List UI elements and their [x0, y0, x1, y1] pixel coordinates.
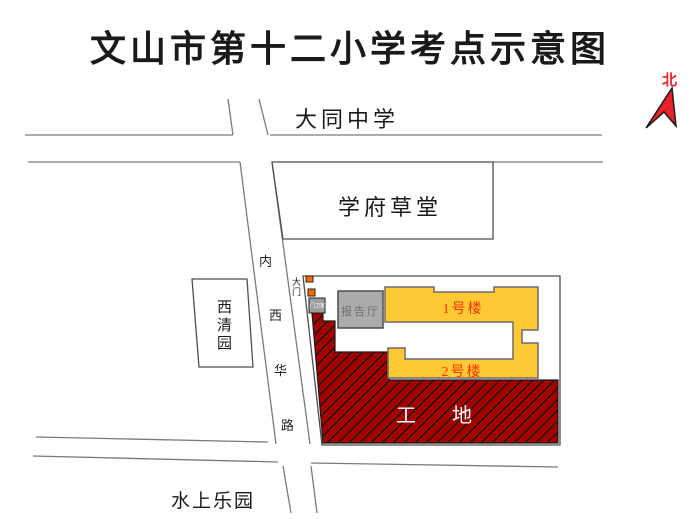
road-name-char: 华 — [274, 360, 287, 379]
label-datong-school: 大同中学 — [277, 102, 417, 134]
north-label: 北 — [662, 69, 677, 90]
exam-site-map: 文山市第十二小学考点示意图 北 大同中学 学府草堂 西清园 水上乐园 内 西 华… — [0, 0, 700, 519]
map-drawing — [0, 0, 700, 519]
gate-marker-icon — [306, 276, 313, 282]
label-construction-site: 工地 — [396, 399, 508, 428]
label-guard-room: 门卫室 — [310, 302, 325, 309]
gate-marker-icon — [308, 289, 315, 296]
label-building-1: 1号楼 — [413, 298, 513, 318]
label-lecture-hall: 报告厅 — [338, 303, 383, 319]
page-title: 文山市第十二小学考点示意图 — [0, 20, 700, 72]
label-water-park: 水上乐园 — [143, 486, 283, 513]
label-xuefu-caotang: 学府草堂 — [320, 190, 460, 222]
label-xiqing-garden: 西清园 — [213, 299, 234, 353]
road-name-char: 路 — [281, 415, 294, 434]
road-name-char: 西 — [269, 305, 282, 324]
label-building-2: 2号楼 — [412, 361, 512, 381]
north-arrow-icon — [646, 88, 676, 128]
road-name-char: 内 — [259, 251, 272, 270]
label-main-gate: 大门 — [290, 277, 303, 297]
